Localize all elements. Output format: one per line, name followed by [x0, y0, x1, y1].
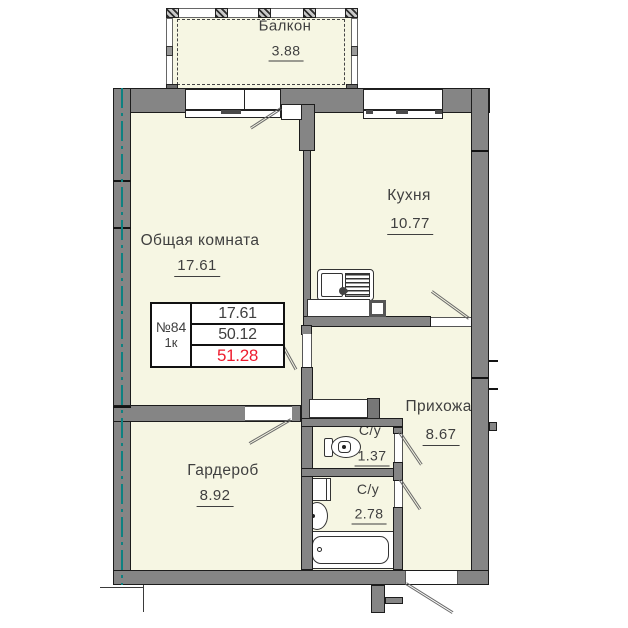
bathtub-drain: [317, 547, 322, 552]
room-label-hallway: Прихожая: [405, 398, 480, 416]
kitchen-sink-drainboard: [345, 273, 370, 297]
toilet-drain: [342, 445, 346, 449]
wall-living-kitchen: [303, 150, 311, 322]
wall-wc1-wc2: [301, 468, 398, 477]
hall-duct: [309, 399, 369, 418]
room-area-balcony: 3.88: [269, 43, 304, 62]
balcony-pier: [258, 8, 271, 18]
room-label-balcony: Балкон: [259, 18, 312, 35]
wall-wc1-top: [301, 418, 403, 427]
room-area-living: 17.61: [174, 257, 220, 277]
wall-right-stub: [489, 422, 497, 431]
entry-niche-stub: [371, 585, 385, 613]
wall-wc-right-low: [393, 507, 403, 570]
hall-duct-shaft: [367, 398, 380, 419]
entry-door-opening: [405, 571, 458, 584]
balcony-pier: [345, 8, 358, 18]
balcony-door-threshold: [281, 104, 302, 120]
kitchen-duct-shaft: [369, 300, 386, 317]
wall-right: [471, 88, 489, 585]
balcony-pier: [303, 8, 316, 18]
stamp-total-area: 51.28: [192, 346, 283, 366]
bathtub-inner: [312, 536, 389, 564]
kitchen-window-mark: [396, 110, 408, 114]
wall-joint: [471, 150, 489, 152]
kitchen-door-opening: [431, 317, 471, 327]
balcony-post-left: [166, 46, 173, 56]
balcony-pier: [166, 8, 179, 18]
stamp-area-without-balcony: 50.12: [192, 325, 283, 346]
neighbor-outline: [100, 587, 144, 588]
living-window-mark: [221, 110, 241, 114]
wall-joint: [489, 388, 498, 390]
room-label-kitchen: Кухня: [387, 187, 430, 205]
entry-door-swing: [405, 582, 453, 614]
balcony-pier: [215, 8, 228, 18]
axis-line: [121, 88, 123, 585]
room-label-living: Общая комната: [141, 232, 260, 250]
living-window-divider: [244, 89, 245, 110]
room-area-hallway: 8.67: [423, 426, 460, 446]
neighbor-outline: [143, 585, 144, 612]
apartment-type: 1к: [165, 336, 178, 350]
kitchen-window-mark: [435, 110, 442, 114]
living-window: [185, 89, 281, 110]
kitchen-window: [363, 89, 443, 110]
room-area-wc2: 2.78: [352, 506, 387, 525]
wall-kitchen-hall: [303, 316, 431, 327]
wardrobe-door-opening: [245, 406, 292, 421]
apartment-number: №84: [156, 320, 187, 335]
room-label-wardrobe: Гардероб: [187, 462, 258, 480]
apartment-stamp: №84 1к 17.61 50.12 51.28: [150, 302, 285, 368]
balcony-post-right: [351, 46, 358, 56]
room-label-wc2: С/у: [357, 481, 379, 497]
room-area-wardrobe: 8.92: [197, 487, 234, 507]
living-door-opening: [302, 334, 312, 367]
wall-joint: [489, 360, 498, 362]
kitchen-duct: [307, 299, 370, 317]
washer-door-line: [326, 479, 327, 500]
room-area-wc1: 1.37: [355, 448, 390, 467]
room-area-kitchen: 10.77: [387, 215, 433, 235]
entry-niche-nub: [385, 597, 403, 604]
wall-joint: [471, 377, 489, 379]
stamp-living-area: 17.61: [192, 304, 283, 325]
floor-plan: Балкон 3.88: [0, 0, 628, 628]
kitchen-window-mark: [366, 110, 373, 114]
